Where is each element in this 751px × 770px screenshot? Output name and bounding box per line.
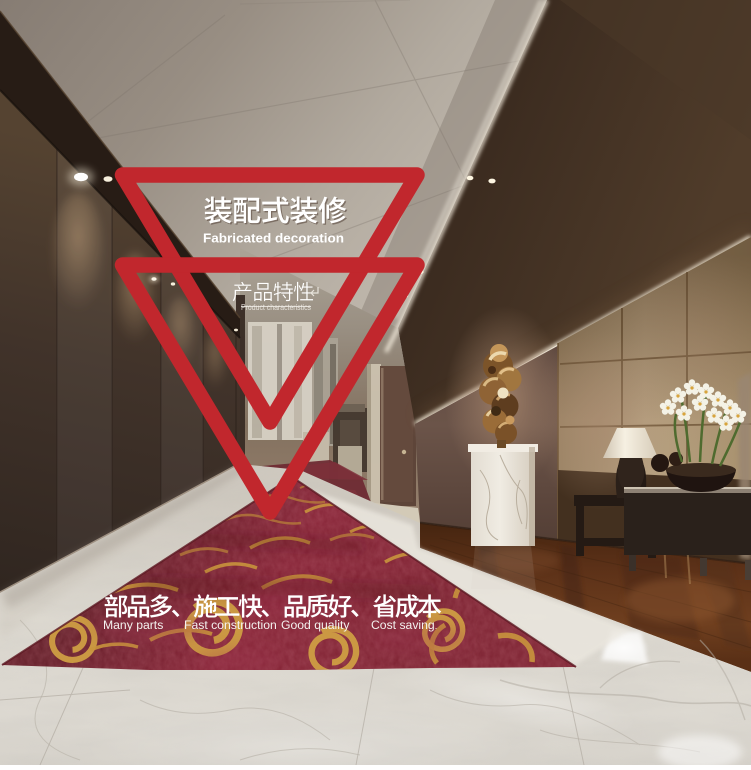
svg-text:Fast construction: Fast construction bbox=[184, 618, 277, 632]
svg-text:Cost saving.: Cost saving. bbox=[371, 618, 437, 632]
svg-text:Many parts: Many parts bbox=[103, 618, 163, 632]
svg-text:Fabricated decoration: Fabricated decoration bbox=[203, 232, 344, 246]
svg-text:Good quality: Good quality bbox=[281, 618, 350, 632]
